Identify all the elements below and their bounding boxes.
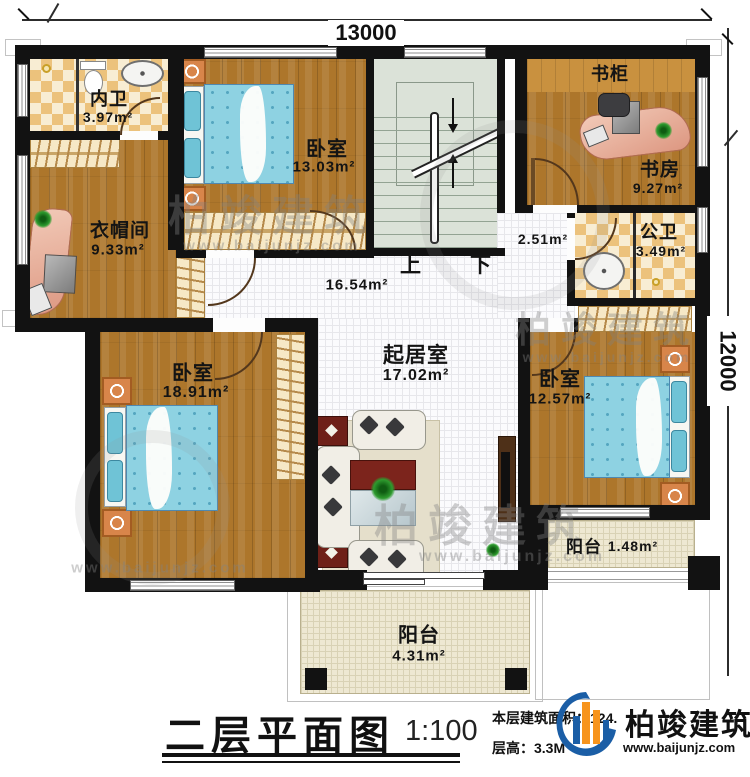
floor-height-text: 层高：3.3M xyxy=(492,738,565,758)
brand-name: 柏竣建筑 xyxy=(625,700,750,744)
door-opening xyxy=(213,318,265,332)
balcony-edge-line xyxy=(548,579,710,580)
dimension-right-value: 12000 xyxy=(707,316,749,406)
label-bookcase: 书柜 xyxy=(591,60,629,86)
room-area-bedroom-top: 13.03m² xyxy=(293,159,356,176)
window xyxy=(697,77,708,167)
hall-area: 16.54m² xyxy=(326,277,389,294)
title-underline xyxy=(162,753,460,757)
stairs-arrow-up xyxy=(452,98,454,126)
window xyxy=(204,47,337,58)
watermark-url: www.baijunjz.com xyxy=(71,560,248,577)
pillow xyxy=(184,91,201,131)
plant xyxy=(655,122,672,139)
room-label-cloakroom: 衣帽间 xyxy=(90,216,150,243)
room-label-inner-bath: 内卫 xyxy=(90,85,128,111)
watermark-ring xyxy=(420,120,610,310)
hall-small-area: 2.51m² xyxy=(518,231,568,247)
floor-drain xyxy=(42,64,51,73)
brand-site: www.baijunjz.com xyxy=(623,740,735,755)
room-area-inner-bath: 3.97m² xyxy=(83,109,133,125)
balcony-post xyxy=(505,668,527,690)
bath-partition xyxy=(76,59,79,133)
window xyxy=(697,207,708,253)
floor-drain xyxy=(652,278,660,286)
title-underline xyxy=(162,761,460,763)
room-label-study: 书房 xyxy=(640,155,680,182)
room-area-study: 9.27m² xyxy=(633,180,683,196)
window xyxy=(17,155,28,265)
window xyxy=(17,64,28,117)
pillow xyxy=(671,381,687,423)
watermark-url: www.baijunjz.com xyxy=(183,238,360,255)
bed-sheet-fold xyxy=(240,86,266,182)
roof-outline xyxy=(535,582,710,700)
room-area-bedroom-right: 12.57m² xyxy=(529,391,592,408)
watermark-text: 柏竣建筑 xyxy=(374,490,590,554)
room-label-bedroom-top: 卧室 xyxy=(306,133,348,162)
toilet-tank xyxy=(80,61,106,70)
floor-plan-canvas: 柏竣建筑 www.baijunjz.com 柏竣建筑 www.baijunjz.… xyxy=(0,0,750,777)
nightstand xyxy=(102,377,132,405)
room-label-living: 起居室 xyxy=(383,339,449,369)
balcony-post xyxy=(305,668,327,690)
stairs-arrow-up-head xyxy=(448,124,458,133)
brand-logo-icon xyxy=(556,686,620,766)
computer-monitor xyxy=(43,254,77,294)
balcony-edge-line xyxy=(548,571,710,572)
stairs-down-label: 下 xyxy=(470,249,492,279)
room-label-bedroom-left: 卧室 xyxy=(172,357,214,386)
cloakroom-closet xyxy=(30,139,120,168)
plant xyxy=(34,210,52,228)
room-area-living: 17.02m² xyxy=(383,367,450,385)
room-area-bedroom-left: 18.91m² xyxy=(163,384,230,402)
pillow xyxy=(671,430,687,472)
window xyxy=(404,47,486,58)
watermark-text: 柏竣建筑 xyxy=(515,301,699,353)
bedroom-left-wardrobe xyxy=(276,334,305,480)
bed-sheet-fold xyxy=(636,378,662,476)
sliding-door-panel xyxy=(363,579,425,585)
wall xyxy=(15,45,710,59)
pillow xyxy=(184,138,201,178)
balcony-post xyxy=(688,556,720,590)
room-area-balcony-bottom: 4.31m² xyxy=(392,648,446,665)
room-label-balcony-right: 阳台 xyxy=(566,533,602,558)
wall xyxy=(85,318,305,332)
dimension-right-text: 12000 xyxy=(715,330,741,391)
dimension-top-value: 13000 xyxy=(328,20,404,46)
room-area-public-bath: 3.49m² xyxy=(636,243,686,259)
dimension-leader xyxy=(724,130,738,147)
room-label-public-bath: 公卫 xyxy=(640,218,678,244)
room-label-bedroom-right: 卧室 xyxy=(539,363,581,392)
sliding-door xyxy=(363,572,485,579)
sink xyxy=(121,60,164,87)
drawing-scale: 1:100 xyxy=(405,715,478,748)
desk-chair xyxy=(598,93,630,117)
watermark-text: 柏竣建筑 xyxy=(168,183,376,244)
room-area-balcony-right: 1.48m² xyxy=(608,538,658,554)
room-label-balcony-bottom: 阳台 xyxy=(398,619,440,648)
wall xyxy=(305,318,318,578)
room-area-cloakroom: 9.33m² xyxy=(91,242,145,259)
stairs-up-label: 上 xyxy=(400,249,422,279)
